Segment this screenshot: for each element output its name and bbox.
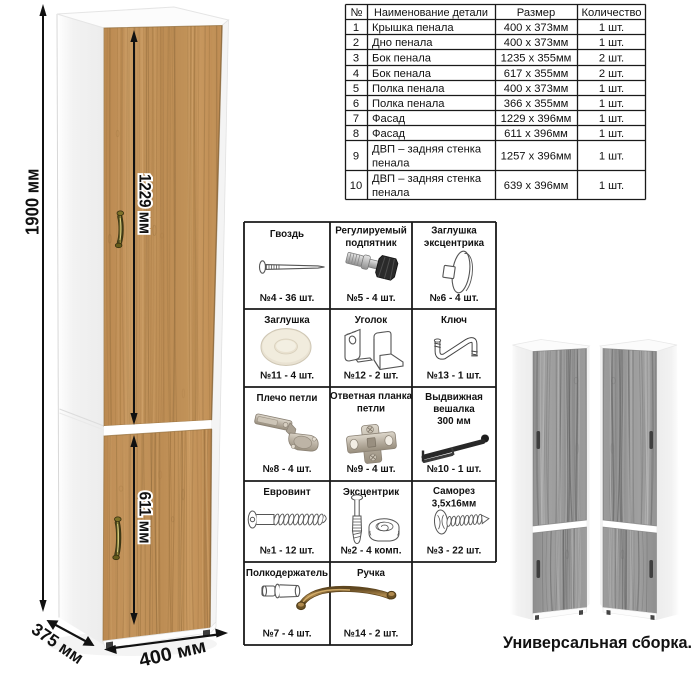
- svg-text:пенала: пенала: [372, 187, 410, 199]
- svg-text:1 шт.: 1 шт.: [599, 83, 624, 95]
- svg-text:1 шт.: 1 шт.: [599, 37, 624, 49]
- svg-text:Уголок: Уголок: [355, 315, 387, 326]
- svg-text:Бок пенала: Бок пенала: [372, 53, 432, 65]
- svg-text:Универсальная сборка.: Универсальная сборка.: [503, 634, 692, 652]
- svg-text:3,5х16мм: 3,5х16мм: [432, 499, 476, 510]
- svg-text:№10 - 1 шт.: №10 - 1 шт.: [427, 464, 482, 475]
- svg-text:Крышка пенала: Крышка пенала: [372, 22, 454, 34]
- svg-text:611 х 396мм: 611 х 396мм: [504, 128, 568, 140]
- svg-text:ДВП – задняя стенка: ДВП – задняя стенка: [372, 173, 482, 185]
- svg-text:Фасад: Фасад: [372, 128, 406, 140]
- svg-text:№8 - 4 шт.: №8 - 4 шт.: [262, 464, 311, 475]
- svg-text:1257 х 396мм: 1257 х 396мм: [501, 151, 572, 163]
- svg-text:1229 х 396мм: 1229 х 396мм: [501, 113, 572, 125]
- svg-text:Выдвижная: Выдвижная: [425, 392, 483, 403]
- svg-text:Регулируемый: Регулируемый: [335, 226, 407, 237]
- svg-text:Количество: Количество: [581, 7, 641, 19]
- svg-text:1 шт.: 1 шт.: [599, 22, 624, 34]
- svg-text:№14 - 2 шт.: №14 - 2 шт.: [344, 629, 399, 640]
- svg-text:Заглушка: Заглушка: [264, 315, 310, 326]
- svg-text:Полка пенала: Полка пенала: [372, 98, 445, 110]
- svg-text:1 шт.: 1 шт.: [599, 180, 624, 192]
- svg-text:подпятник: подпятник: [345, 238, 396, 249]
- svg-text:1900 мм: 1900 мм: [22, 169, 43, 236]
- svg-text:366 х 355мм: 366 х 355мм: [504, 98, 569, 110]
- svg-text:№1 - 12 шт.: №1 - 12 шт.: [260, 546, 315, 557]
- svg-text:Евровинт: Евровинт: [263, 487, 310, 498]
- svg-text:Ключ: Ключ: [441, 315, 467, 326]
- svg-text:Дно пенала: Дно пенала: [372, 37, 433, 49]
- svg-text:№13 - 1 шт.: №13 - 1 шт.: [427, 371, 482, 382]
- svg-text:10: 10: [350, 180, 362, 192]
- svg-text:Размер: Размер: [517, 7, 555, 19]
- svg-text:7: 7: [353, 113, 359, 125]
- svg-text:Бок пенала: Бок пенала: [372, 68, 432, 80]
- svg-text:400 х 373мм: 400 х 373мм: [504, 22, 569, 34]
- svg-text:Саморез: Саморез: [433, 486, 475, 497]
- svg-text:1229 мм: 1229 мм: [136, 174, 155, 234]
- svg-text:1235 х 355мм: 1235 х 355мм: [501, 53, 572, 65]
- svg-text:вешалка: вешалка: [433, 404, 475, 415]
- svg-text:300 мм: 300 мм: [437, 416, 471, 427]
- svg-text:611 мм: 611 мм: [136, 492, 155, 544]
- svg-text:№: №: [350, 7, 362, 19]
- svg-text:№7 - 4 шт.: №7 - 4 шт.: [262, 629, 311, 640]
- svg-text:№2 - 4 комп.: №2 - 4 комп.: [340, 546, 401, 557]
- svg-text:Ответная планка: Ответная планка: [330, 391, 413, 402]
- svg-text:№6 - 4 шт.: №6 - 4 шт.: [429, 293, 478, 304]
- svg-text:эксцентрика: эксцентрика: [424, 238, 485, 249]
- svg-text:4: 4: [353, 68, 359, 80]
- svg-text:1 шт.: 1 шт.: [599, 128, 624, 140]
- svg-text:№11 - 4 шт.: №11 - 4 шт.: [260, 371, 314, 382]
- svg-text:петли: петли: [357, 404, 385, 415]
- svg-text:№9 - 4 шт.: №9 - 4 шт.: [346, 464, 395, 475]
- svg-text:2 шт.: 2 шт.: [599, 53, 624, 65]
- svg-text:1 шт.: 1 шт.: [599, 113, 624, 125]
- svg-text:400 х 373мм: 400 х 373мм: [504, 37, 569, 49]
- svg-text:9: 9: [353, 151, 359, 163]
- svg-text:Наименование детали: Наименование детали: [374, 7, 488, 19]
- svg-text:Плечо петли: Плечо петли: [257, 393, 318, 404]
- svg-text:2: 2: [353, 37, 359, 49]
- svg-text:Гвоздь: Гвоздь: [270, 229, 304, 240]
- svg-text:№12 - 2 шт.: №12 - 2 шт.: [344, 371, 399, 382]
- svg-text:пенала: пенала: [372, 157, 410, 169]
- svg-text:№5 - 4 шт.: №5 - 4 шт.: [346, 293, 395, 304]
- svg-text:1 шт.: 1 шт.: [599, 151, 624, 163]
- svg-text:3: 3: [353, 53, 359, 65]
- svg-text:639 х 396мм: 639 х 396мм: [504, 180, 569, 192]
- svg-text:Полка пенала: Полка пенала: [372, 83, 445, 95]
- svg-text:5: 5: [353, 83, 359, 95]
- svg-text:400 х 373мм: 400 х 373мм: [504, 83, 569, 95]
- svg-text:Фасад: Фасад: [372, 113, 406, 125]
- svg-text:617 х 355мм: 617 х 355мм: [504, 68, 569, 80]
- svg-text:1 шт.: 1 шт.: [599, 98, 624, 110]
- svg-text:№4 - 36 шт.: №4 - 36 шт.: [260, 293, 315, 304]
- svg-text:Ручка: Ручка: [357, 568, 386, 579]
- svg-text:ДВП – задняя стенка: ДВП – задняя стенка: [372, 143, 482, 155]
- svg-text:6: 6: [353, 98, 359, 110]
- svg-text:№3 - 22 шт.: №3 - 22 шт.: [427, 546, 482, 557]
- svg-text:Заглушка: Заглушка: [431, 226, 477, 237]
- svg-text:8: 8: [353, 128, 359, 140]
- svg-text:Полкодержатель: Полкодержатель: [246, 568, 328, 579]
- svg-text:2 шт.: 2 шт.: [599, 68, 624, 80]
- svg-text:1: 1: [353, 22, 359, 34]
